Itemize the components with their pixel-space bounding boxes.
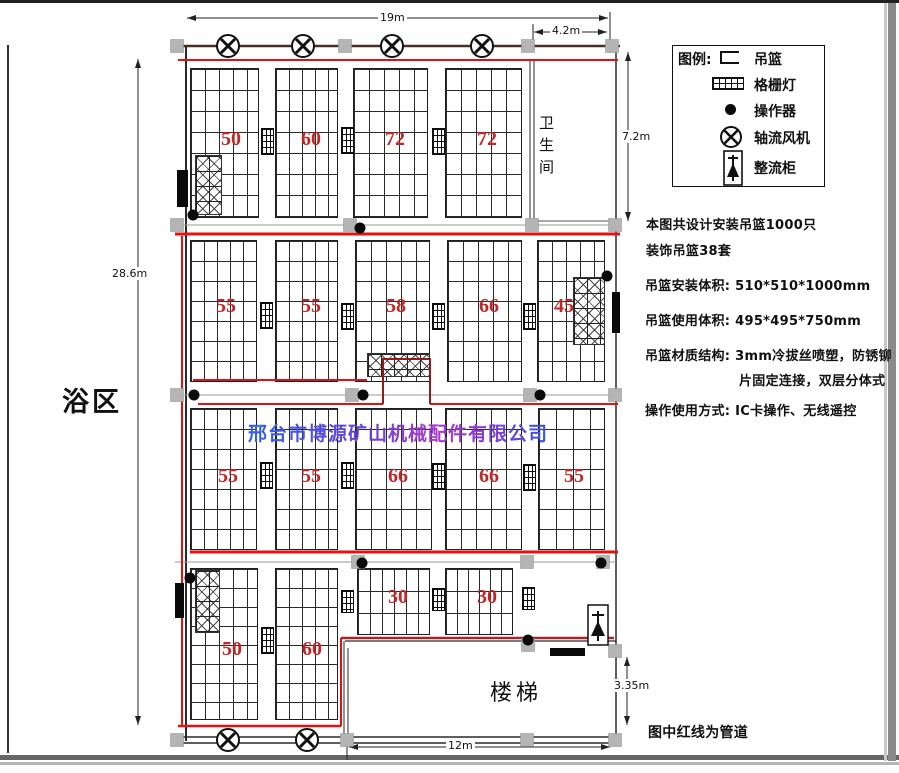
operator-dot-icon [725,104,736,115]
axial-fan-symbol-icon [719,125,743,149]
basket-count: 55 [292,465,330,488]
grille-light-icon [432,303,445,330]
company-watermark: 邢台市博源矿山机械配件有限公司 [248,419,548,446]
grille-light-icon [522,587,535,610]
legend-box: 图例: 吊篮 格栅灯 操作器 轴流风机 整流柜 [672,45,825,187]
grille-light-icon [261,128,274,155]
spec-note-line: 片固定连接，双层分体式 [739,370,885,389]
axial-fan-icon [217,729,239,751]
grille-light-icon [260,302,273,329]
basket-count: 72 [468,128,506,151]
basket-count: 66 [470,295,508,318]
grille-light-icon [432,463,445,490]
basket-symbol-icon [720,51,739,64]
room-label-toilet: 卫生间 [536,115,557,220]
basket-count: 66 [470,465,508,488]
legend-item-label: 整流柜 [754,158,796,178]
basket-count: 30 [379,586,417,609]
dim-stairs-height: 3.35m [612,679,651,692]
hatched-zone [195,570,220,633]
grille-light-icon [432,588,445,611]
grille-light-icon [341,303,354,330]
spec-note-line: 本图共设计安装吊篮1000只 [646,214,816,233]
basket-count: 50 [212,128,250,151]
room-label-bath: 浴区 [62,380,122,419]
spec-note-line: 装饰吊篮38套 [646,240,731,259]
spec-note-line: 吊篮使用体积: 495*495*750mm [645,310,861,329]
spec-note-line: 操作使用方式: IC卡操作、无线遥控 [645,400,857,419]
hatched-zone [195,155,222,215]
grille-light-icon [432,128,445,155]
basket-count: 55 [555,465,593,488]
basket-count: 30 [468,586,506,609]
axial-fan-icon [471,35,493,57]
grille-light-symbol-icon [712,77,744,90]
floor-plan-canvas: 50 60 72 72 55 55 58 66 45 55 55 66 66 5… [0,0,899,773]
grille-light-icon [261,627,274,654]
basket-count: 45 [545,295,583,318]
basket-count: 72 [376,128,414,151]
axial-fan-icon [296,729,318,751]
dim-stairs-width: 12m [446,739,475,752]
legend-item-label: 操作器 [754,101,796,121]
rectifier-symbol-icon [723,150,743,186]
basket-count: 55 [292,295,330,318]
basket-count: 66 [379,465,417,488]
basket-count: 60 [293,638,331,661]
legend-item-label: 轴流风机 [754,128,810,148]
dim-left-height: 28.6m [110,267,149,280]
pipe-note: 图中红线为管道 [648,722,748,742]
dim-toilet-width: 4.2m [550,24,582,37]
legend-title: 图例: [678,49,712,69]
grille-light-icon [523,464,536,491]
dim-toilet-height: 7.2m [620,130,652,143]
legend-item-label: 吊篮 [754,49,782,69]
room-label-stairs: 楼梯 [490,675,542,707]
axial-fan-icon [381,35,403,57]
grille-light-icon [341,462,354,489]
grille-light-icon [341,590,354,613]
basket-count: 55 [209,465,247,488]
basket-count: 50 [213,638,251,661]
grille-light-icon [523,303,536,330]
basket-count: 58 [377,295,415,318]
hatched-zone [367,353,430,377]
axial-fan-icon [292,35,314,57]
basket-count: 55 [207,295,245,318]
legend-item-label: 格栅灯 [754,75,796,95]
basket-count: 60 [292,128,330,151]
rectifier-cabinet-icon [588,605,608,645]
spec-note-line: 吊篮材质结构: 3mm冷拔丝喷塑，防锈铆 [645,345,892,364]
spec-note-line: 吊篮安装体积: 510*510*1000mm [645,275,870,294]
grille-light-icon [341,127,354,154]
dim-top-width: 19m [378,11,407,24]
axial-fan-icon [217,35,239,57]
grille-light-icon [260,462,273,489]
